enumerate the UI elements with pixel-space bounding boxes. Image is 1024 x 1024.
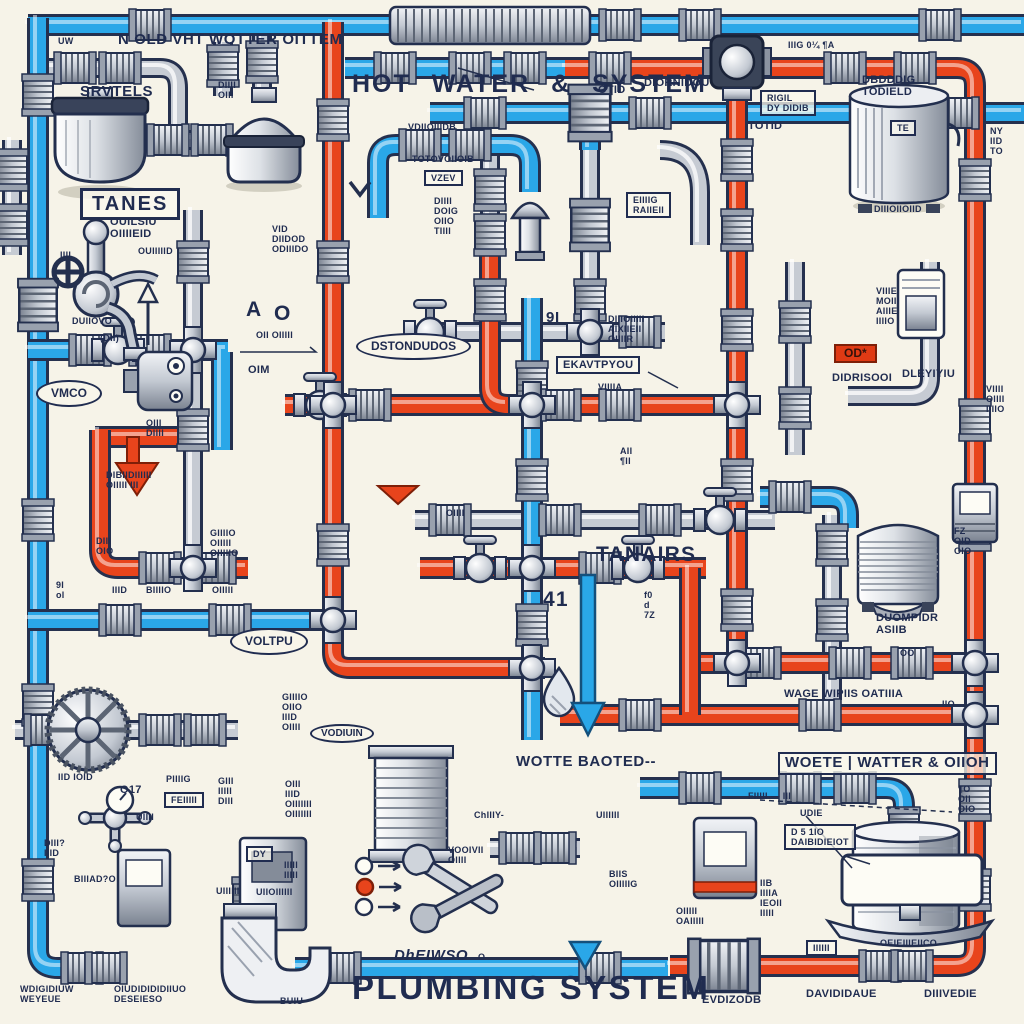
- pipe-coupler: [22, 859, 54, 901]
- gate-valve: [454, 536, 506, 582]
- pipe-coupler: [721, 209, 753, 251]
- pipe-coupler: [721, 139, 753, 181]
- beaker-small: [898, 270, 944, 338]
- ribbed-column-device: [369, 746, 453, 862]
- pipe-coupler: [834, 772, 876, 804]
- hot-water-pipe: [687, 565, 690, 715]
- pipe-coupler: [824, 52, 866, 84]
- red-arrow-down-2: [378, 486, 418, 504]
- pipe-coupler: [207, 45, 239, 87]
- pipe-coupler: [539, 504, 581, 536]
- pipe-coupler: [629, 97, 671, 129]
- pipe-coupler: [399, 129, 441, 161]
- cold-water-pipe: [25, 617, 338, 620]
- pipe-coupler: [147, 124, 189, 156]
- pipe-coupler: [894, 52, 936, 84]
- pipe-coupler: [129, 9, 171, 41]
- pipe-coupler: [464, 97, 506, 129]
- cross-fitting: [714, 640, 760, 686]
- legend-dot: [357, 879, 373, 895]
- filter-device: [694, 818, 756, 898]
- pipe-coupler: [209, 604, 251, 636]
- cross-fitting: [509, 382, 555, 428]
- pipe-coupler: [959, 399, 991, 441]
- pipe-coupler: [959, 159, 991, 201]
- pipe-coupler: [816, 524, 848, 566]
- pipe-coupler: [246, 41, 278, 83]
- pipe-coupler: [99, 604, 141, 636]
- pipe-coupler: [721, 309, 753, 351]
- pipe-coupler: [619, 699, 661, 731]
- pipe-coupler: [779, 387, 811, 429]
- wheel-valve: [48, 690, 128, 770]
- pipe-coupler: [516, 459, 548, 501]
- pipe-coupler: [721, 589, 753, 631]
- pipe-coupler: [374, 52, 416, 84]
- tank-canister-top-right: [850, 85, 959, 213]
- pipe-coupler: [679, 772, 721, 804]
- cross-fitting: [714, 382, 760, 428]
- pipe-coupler: [769, 481, 811, 513]
- pipe-coupler: [816, 599, 848, 641]
- pressure-gauge: [107, 787, 133, 813]
- pipe-coupler: [177, 241, 209, 283]
- p-trap: [222, 904, 330, 1002]
- pipe-coupler: [516, 604, 548, 646]
- pipe-coupler: [474, 214, 506, 256]
- pipe-coupler: [22, 74, 54, 116]
- tank-ribbed-mid: [858, 525, 938, 619]
- legend-dot: [356, 899, 372, 915]
- pipe-coupler: [139, 714, 181, 746]
- cross-fitting: [310, 597, 356, 643]
- tank-dome: [224, 88, 304, 192]
- plumbing-diagram: UWN OLD VHT WOTTER OITTEMHOT WATER & SYS…: [0, 0, 1024, 1024]
- diagram-canvas: [0, 0, 1024, 1024]
- pipe-coupler: [317, 241, 349, 283]
- pipe-coupler: [570, 199, 610, 252]
- pipe-coupler: [891, 647, 933, 679]
- pipe-coupler: [22, 499, 54, 541]
- pipe-coupler: [619, 316, 661, 348]
- pipe-coupler: [18, 279, 58, 332]
- pipe-coupler: [779, 301, 811, 343]
- legend-dot: [356, 858, 372, 874]
- pipe-coupler: [474, 279, 506, 321]
- pipe-coupler: [799, 699, 841, 731]
- pipe-coupler: [184, 714, 226, 746]
- legend: [356, 858, 401, 915]
- pipe-coupler: [429, 504, 471, 536]
- pipe-coupler: [0, 204, 28, 246]
- cold-water-pipe: [219, 349, 222, 450]
- pipe-coupler: [449, 129, 491, 161]
- pipe-coupler: [891, 950, 933, 982]
- pipe-coupler: [99, 52, 141, 84]
- pipe-coupler: [779, 772, 821, 804]
- pipe-coupler: [474, 169, 506, 211]
- ribbed-flex-pipe: [390, 7, 590, 44]
- blue-arrow-long: [572, 575, 604, 735]
- pipe-coupler: [449, 52, 491, 84]
- pipe-coupler: [639, 504, 681, 536]
- control-box-1: [118, 850, 170, 926]
- pipe-coupler: [504, 52, 546, 84]
- gray-pipe: [657, 147, 700, 245]
- pipe-coupler: [829, 647, 871, 679]
- cross-fitting: [509, 545, 555, 591]
- pipe-coupler: [568, 85, 611, 142]
- pipe-coupler: [534, 832, 576, 864]
- bell-regulator: [512, 203, 548, 260]
- pipe-coupler: [959, 779, 991, 821]
- cross-fitting: [952, 640, 998, 686]
- pipe-coupler: [317, 524, 349, 566]
- cross-fitting: [952, 692, 998, 738]
- pipe-coupler: [54, 52, 96, 84]
- gate-valve: [612, 536, 664, 582]
- tee-valve-main: [703, 36, 771, 100]
- pipe-coupler: [599, 9, 641, 41]
- pipe-coupler: [317, 99, 349, 141]
- pipe-coupler: [85, 952, 127, 984]
- pipe-coupler: [688, 939, 759, 993]
- pipe-coupler: [599, 389, 641, 421]
- pipe-coupler: [919, 9, 961, 41]
- inline-heater-device: [953, 484, 997, 542]
- tank-left-kettle: [52, 88, 148, 199]
- pipe-coupler: [177, 409, 209, 451]
- pipe-coupler: [589, 52, 631, 84]
- gate-valve: [404, 300, 456, 346]
- pipe-coupler: [0, 149, 28, 191]
